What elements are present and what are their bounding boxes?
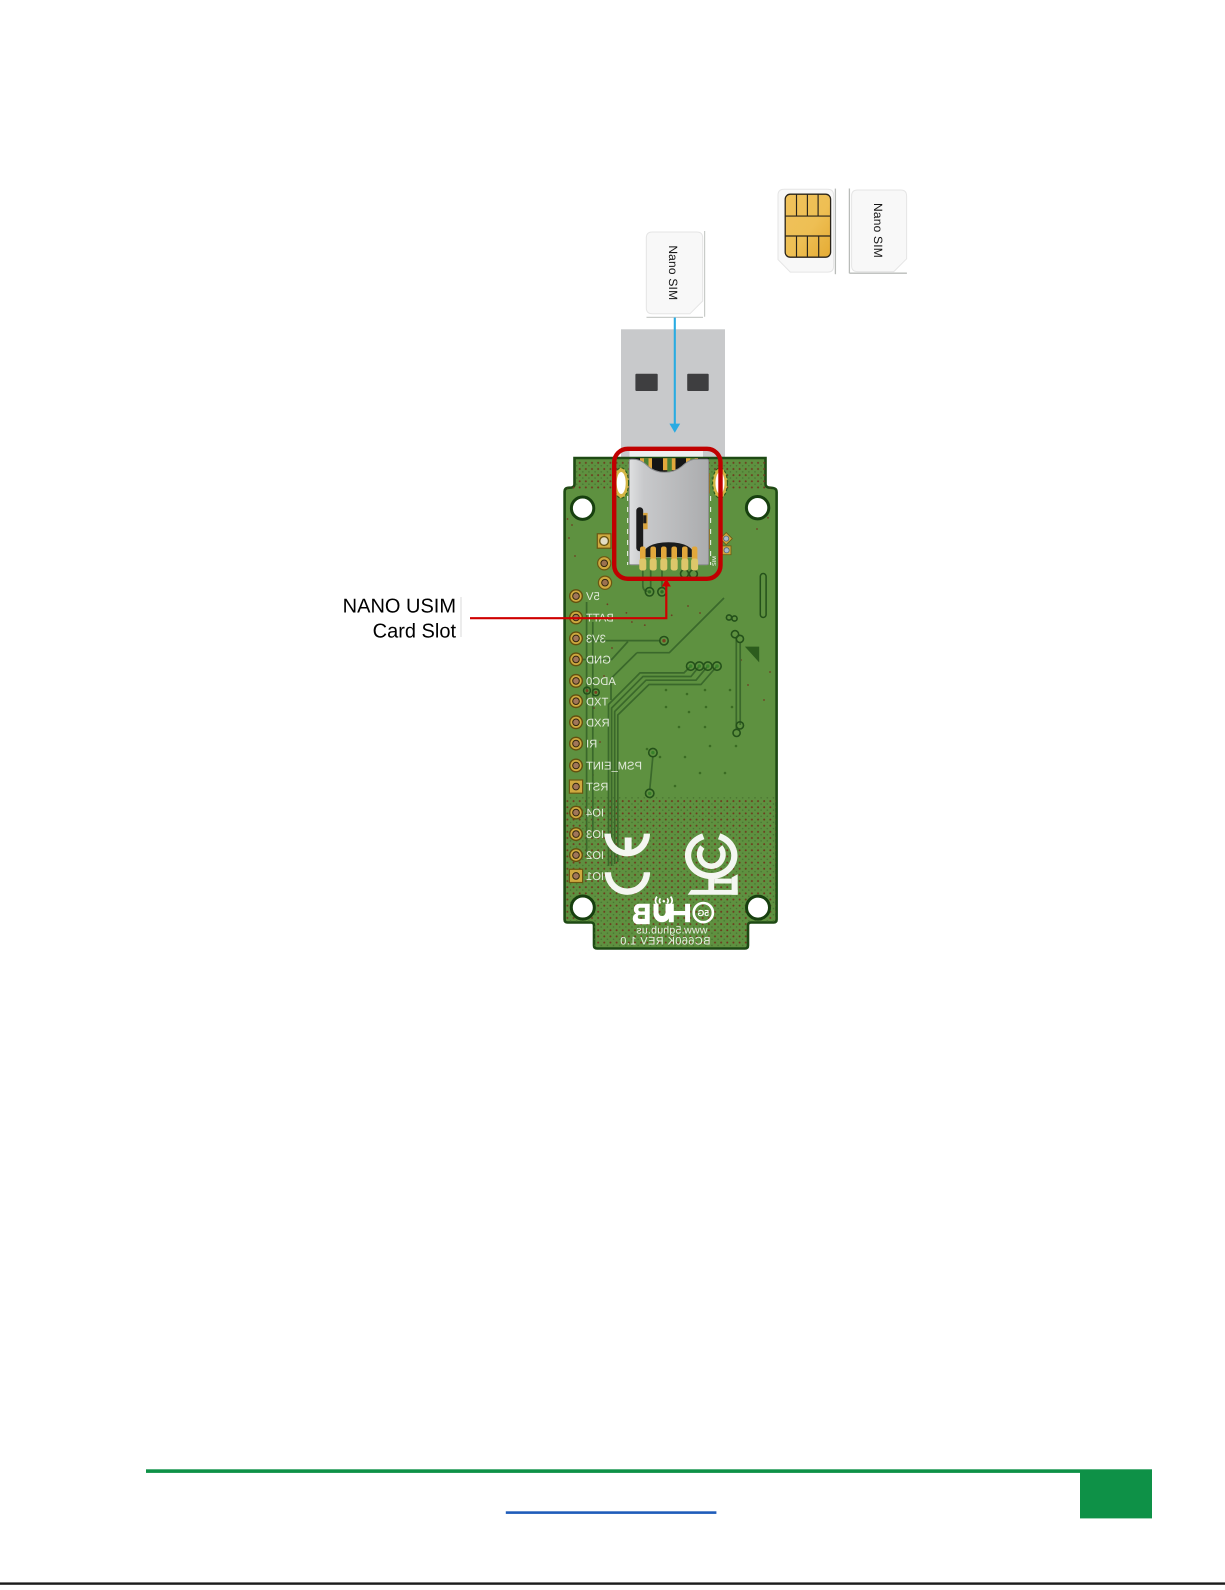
svg-text:Nano SIM: Nano SIM [666,245,680,300]
svg-text:BC660K REV 1.0: BC660K REV 1.0 [620,936,711,948]
svg-text:RST: RST [586,782,609,794]
svg-text:SIM: SIM [712,556,718,566]
svg-text:ADC0: ADC0 [586,676,616,688]
svg-text:IO1: IO1 [586,871,604,883]
svg-text:3V3: 3V3 [586,634,606,646]
svg-text:RI: RI [586,739,597,751]
svg-text:GND: GND [586,655,611,667]
svg-text:NANO USIM: NANO USIM [343,596,456,618]
svg-text:IO2: IO2 [586,850,604,862]
svg-text:RXD: RXD [586,717,610,729]
svg-text:Nano SIM: Nano SIM [871,203,885,258]
svg-text:PSM_EINT: PSM_EINT [586,761,642,773]
svg-text:5G: 5G [697,908,709,918]
svg-text:TXD: TXD [586,696,608,708]
svg-text:IO3: IO3 [586,829,604,841]
svg-text:IO4: IO4 [586,808,604,820]
svg-text:5V: 5V [585,591,599,603]
svg-text:Card Slot: Card Slot [373,621,457,643]
